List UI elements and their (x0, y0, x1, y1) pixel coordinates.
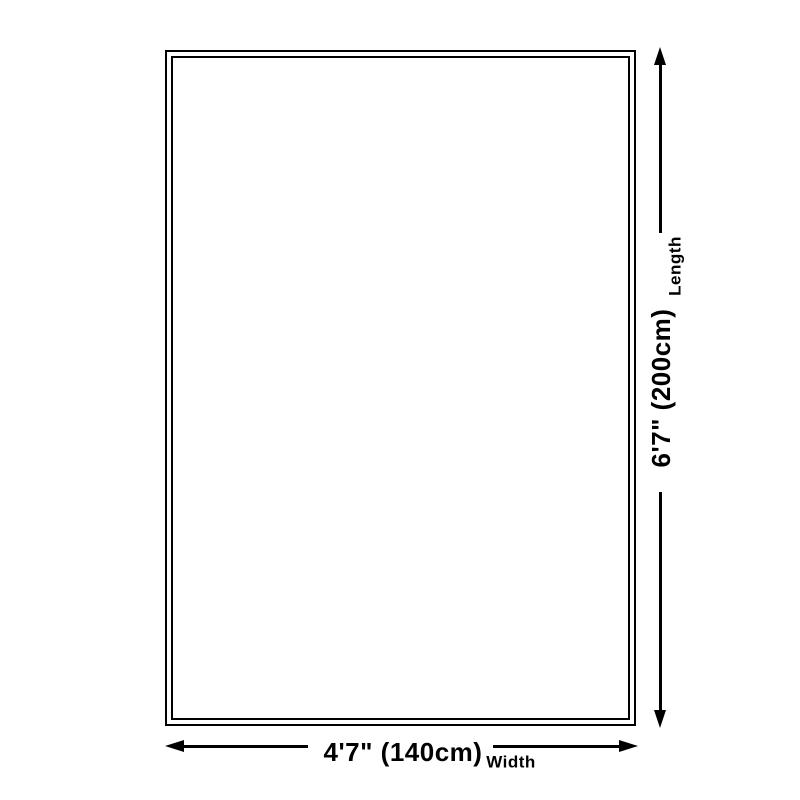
length-label: Length (667, 236, 684, 296)
arrow-down-icon (654, 710, 666, 728)
length-arrow-top-segment (659, 64, 662, 233)
width-value: 4'7" (140cm) (324, 739, 483, 765)
product-outline-outer (165, 50, 636, 726)
width-arrow-left-segment (184, 745, 308, 748)
product-outline-inner (171, 56, 630, 720)
arrow-up-icon (654, 47, 666, 65)
width-label: Width (486, 754, 536, 771)
length-value: 6'7" (200cm) (648, 309, 674, 468)
arrow-right-icon (619, 740, 638, 752)
width-arrow-right-segment (493, 745, 621, 748)
length-arrow-bottom-segment (659, 492, 662, 711)
size-diagram: Length 6'7" (200cm) 4'7" (140cm) Width (0, 0, 800, 800)
arrow-left-icon (165, 740, 184, 752)
